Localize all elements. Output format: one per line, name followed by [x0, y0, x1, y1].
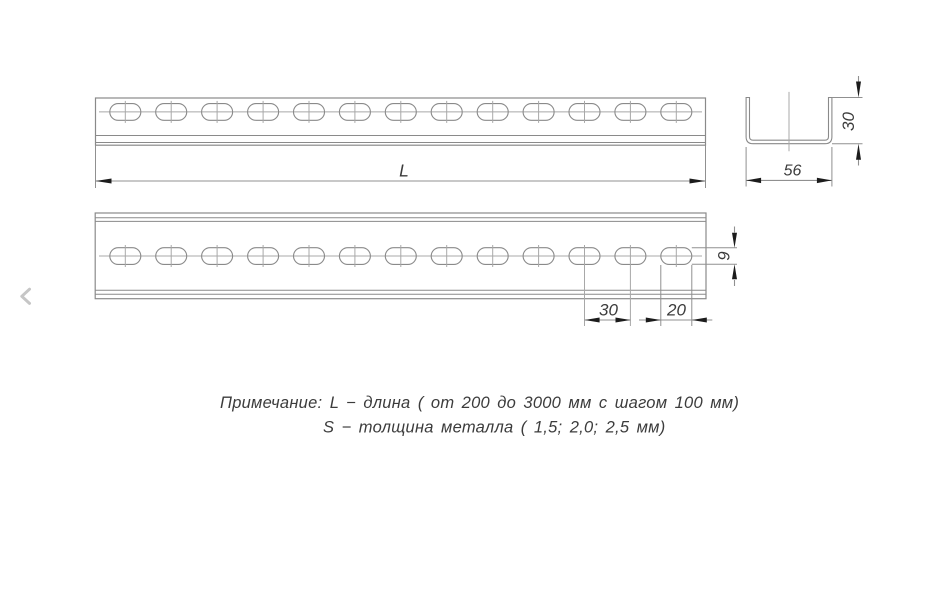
svg-text:56: 56	[784, 163, 802, 180]
svg-text:9: 9	[716, 251, 734, 260]
svg-text:S − толщина металла ( 1,5; 2,0: S − толщина металла ( 1,5; 2,0; 2,5 мм)	[323, 419, 665, 437]
svg-text:Примечание: L − длина ( от 200: Примечание: L − длина ( от 200 до 3000 м…	[220, 394, 739, 412]
svg-text:30: 30	[839, 112, 858, 131]
svg-text:20: 20	[666, 301, 686, 320]
svg-text:30: 30	[599, 301, 618, 320]
svg-text:L: L	[399, 161, 409, 181]
